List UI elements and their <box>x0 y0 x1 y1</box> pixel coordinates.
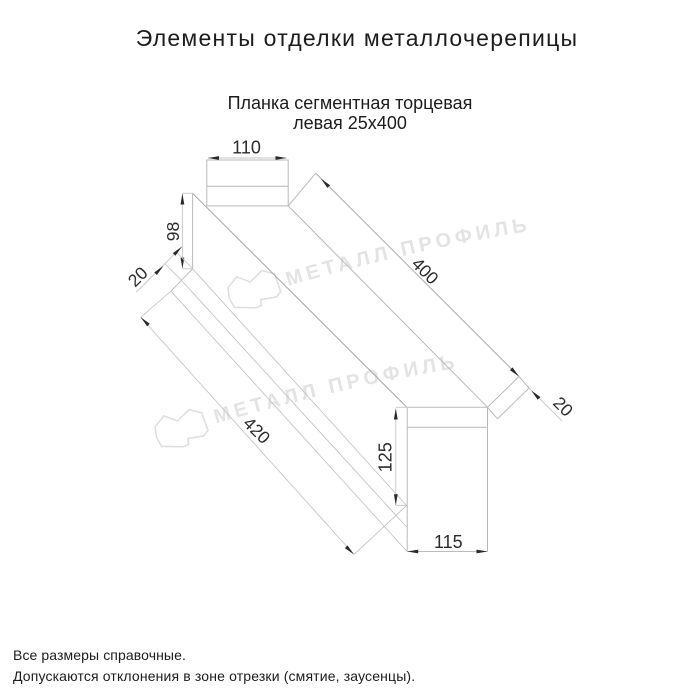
svg-text:МЕТАЛЛ ПРОФИЛЬ: МЕТАЛЛ ПРОФИЛЬ <box>283 214 532 291</box>
svg-text:115: 115 <box>434 532 463 552</box>
svg-text:20: 20 <box>549 393 577 421</box>
svg-text:125: 125 <box>376 442 396 472</box>
svg-text:400: 400 <box>408 254 443 289</box>
svg-text:98: 98 <box>163 222 183 241</box>
svg-text:110: 110 <box>232 138 261 158</box>
svg-text:20: 20 <box>124 263 152 291</box>
